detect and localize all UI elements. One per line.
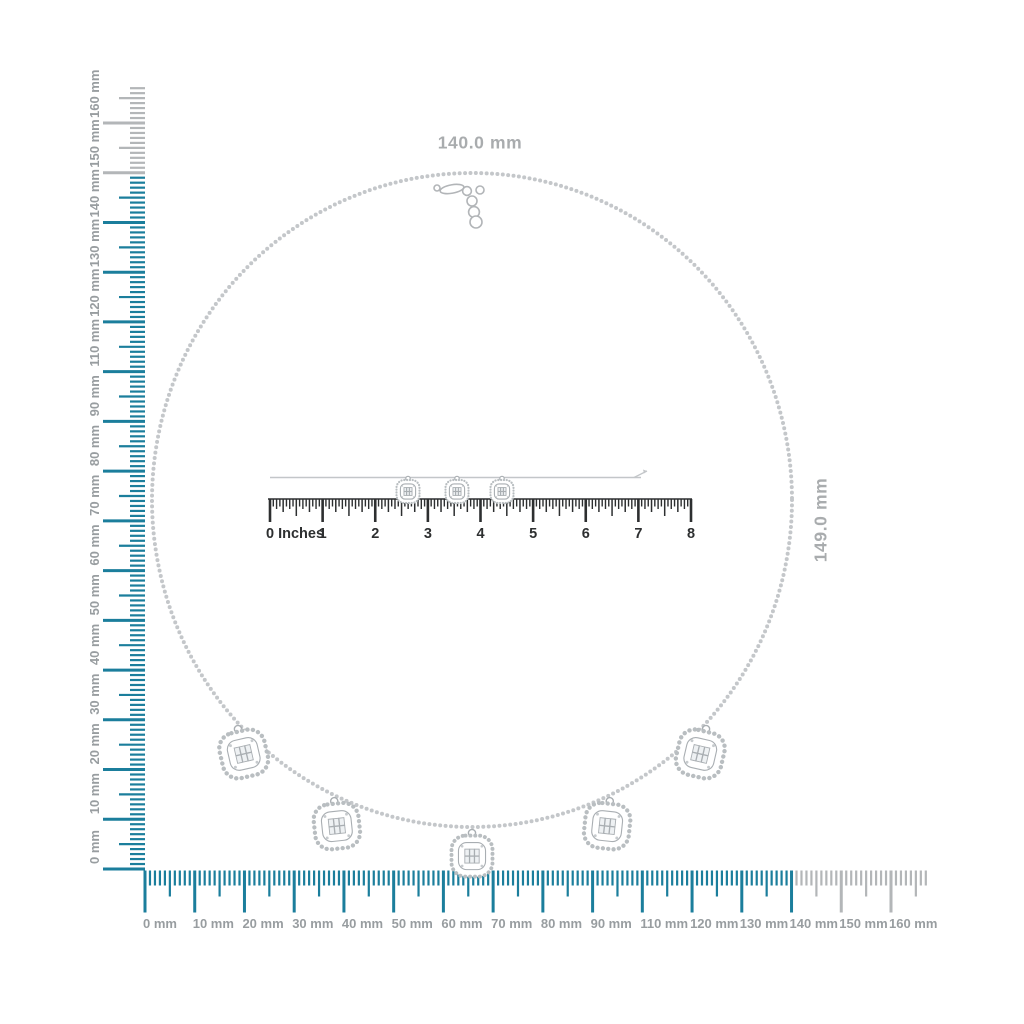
horizontal-ruler-label: 150 mm — [839, 916, 887, 931]
vertical-ruler-label: 120 mm — [87, 269, 102, 317]
inch-ruler-label: 8 — [687, 526, 695, 542]
necklace-clasp-icon — [434, 183, 484, 228]
necklace — [152, 173, 792, 877]
pendant-cushion — [312, 801, 361, 850]
horizontal-ruler-label: 70 mm — [491, 916, 532, 931]
measurement-scene: 0 mm10 mm20 mm30 mm40 mm50 mm60 mm70 mm8… — [0, 0, 1024, 1024]
horizontal-ruler-label: 120 mm — [690, 916, 738, 931]
vertical-ruler-label: 140 mm — [87, 169, 102, 217]
necklace-pendant — [673, 725, 728, 781]
horizontal-ruler-label: 40 mm — [342, 916, 383, 931]
pendant-cushion — [452, 836, 493, 877]
wire-charm — [491, 480, 514, 503]
inch-ruler-label: 2 — [371, 526, 379, 542]
vertical-ruler-label: 160 mm — [87, 70, 102, 118]
horizontal-ruler-label: 30 mm — [292, 916, 333, 931]
inch-ruler: 0 Inches12345678 — [266, 499, 695, 542]
inch-ruler-label: 7 — [634, 526, 642, 542]
inch-ruler-label: 3 — [424, 526, 432, 542]
vertical-ruler-label: 130 mm — [87, 219, 102, 267]
vertical-ruler-label: 150 mm — [87, 119, 102, 167]
necklace-pendant — [312, 798, 361, 851]
vertical-ruler-label: 20 mm — [87, 723, 102, 764]
vertical-ruler-label: 90 mm — [87, 375, 102, 416]
inch-ruler-label: 4 — [476, 526, 484, 542]
horizontal-ruler-label: 50 mm — [392, 916, 433, 931]
horizontal-ruler-label: 20 mm — [242, 916, 283, 931]
width-dimension-label: 140.0 mm — [438, 133, 523, 154]
necklace-pendant — [582, 798, 631, 851]
vertical-ruler-label: 30 mm — [87, 674, 102, 715]
inch-ruler-label: 0 Inches — [266, 526, 324, 542]
wire-charm — [446, 480, 469, 503]
pendant-cushion — [216, 726, 271, 781]
horizontal-ruler-label: 0 mm — [143, 916, 177, 931]
vertical-ruler-label: 0 mm — [87, 830, 102, 864]
horizontal-ruler-label: 90 mm — [591, 916, 632, 931]
vertical-mm-ruler: 0 mm10 mm20 mm30 mm40 mm50 mm60 mm70 mm8… — [87, 70, 145, 869]
wire-charm — [397, 480, 420, 503]
vertical-ruler-label: 50 mm — [87, 574, 102, 615]
necklace-pendant — [216, 725, 271, 781]
pendant-cushion — [582, 801, 631, 850]
inch-ruler-label: 5 — [529, 526, 537, 542]
horizontal-ruler-label: 130 mm — [740, 916, 788, 931]
vertical-ruler-label: 110 mm — [87, 319, 102, 367]
necklace-pendant — [452, 829, 493, 876]
horizontal-ruler-label: 10 mm — [193, 916, 234, 931]
vertical-ruler-label: 10 mm — [87, 773, 102, 814]
charm-wire — [270, 470, 647, 504]
vertical-ruler-label: 80 mm — [87, 425, 102, 466]
horizontal-ruler-label: 80 mm — [541, 916, 582, 931]
horizontal-ruler-label: 160 mm — [889, 916, 937, 931]
height-dimension-label: 149.0 mm — [811, 478, 832, 563]
inch-ruler-label: 1 — [319, 526, 327, 542]
pendant-cushion — [673, 726, 728, 781]
vertical-ruler-label: 70 mm — [87, 475, 102, 516]
inch-ruler-label: 6 — [582, 526, 590, 542]
vertical-ruler-label: 60 mm — [87, 524, 102, 565]
product-measurement-image: 0 mm10 mm20 mm30 mm40 mm50 mm60 mm70 mm8… — [0, 0, 1024, 1024]
horizontal-ruler-label: 60 mm — [441, 916, 482, 931]
vertical-ruler-label: 40 mm — [87, 624, 102, 665]
horizontal-ruler-label: 110 mm — [640, 916, 688, 931]
horizontal-mm-ruler: 0 mm10 mm20 mm30 mm40 mm50 mm60 mm70 mm8… — [143, 871, 937, 932]
horizontal-ruler-label: 140 mm — [790, 916, 838, 931]
